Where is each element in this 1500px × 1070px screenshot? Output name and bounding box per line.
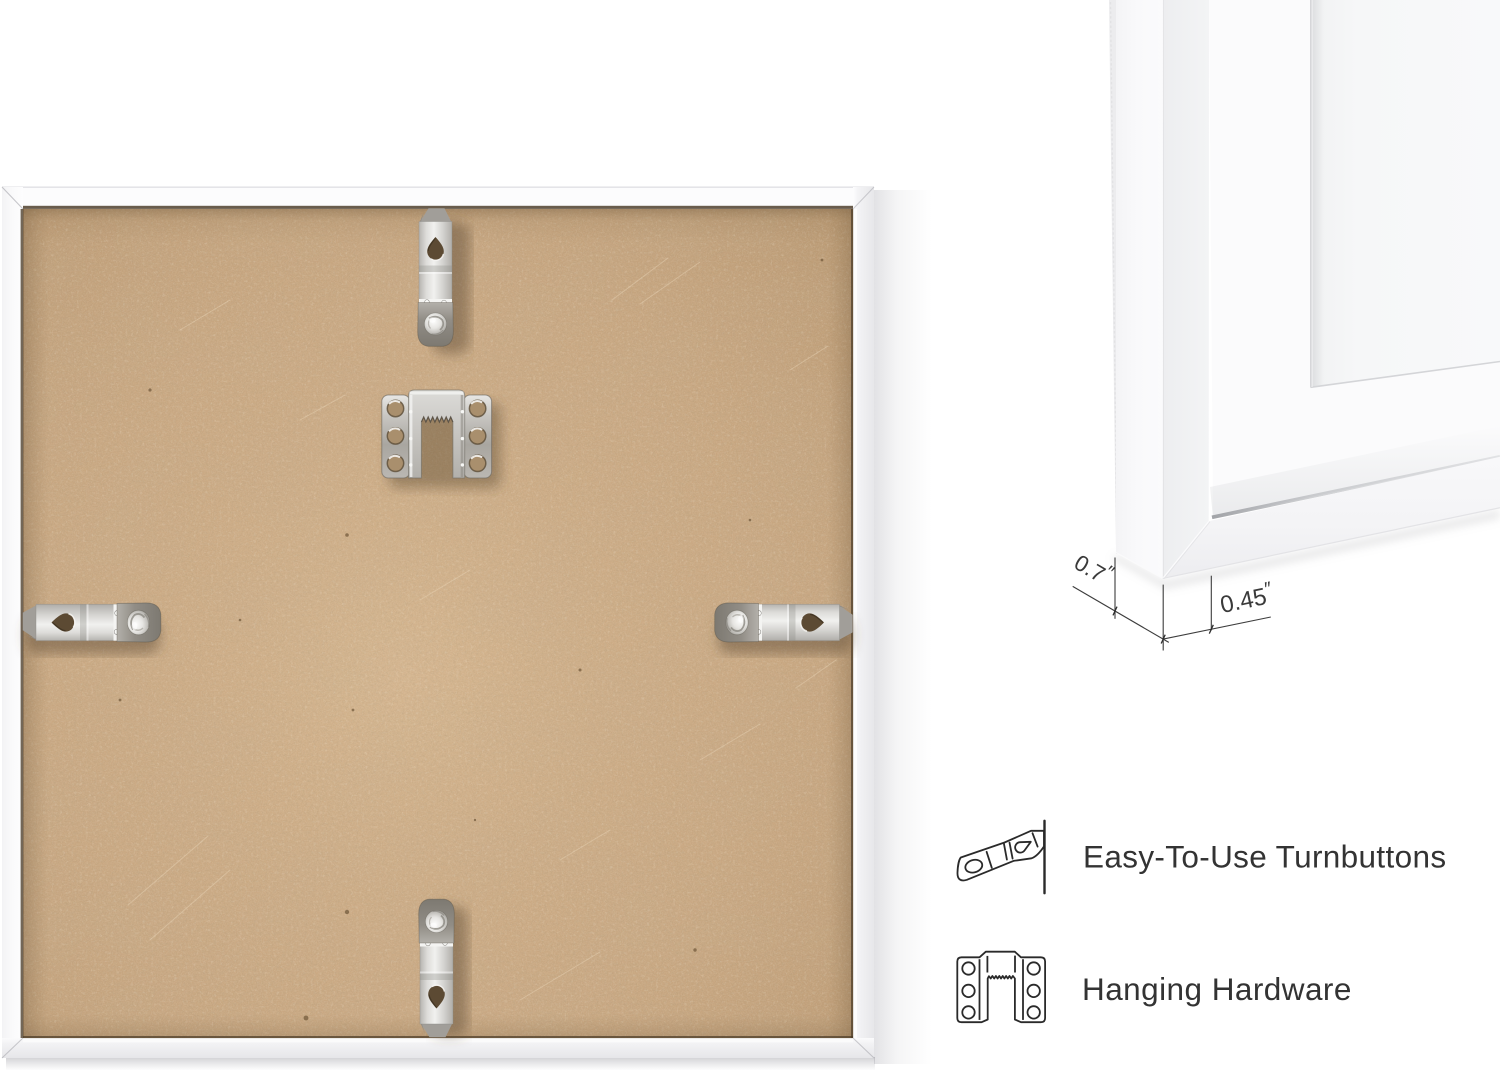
svg-text:Hanging Hardware: Hanging Hardware [1082,971,1352,1007]
svg-text:Easy-To-Use Turnbuttons: Easy-To-Use Turnbuttons [1083,839,1446,875]
